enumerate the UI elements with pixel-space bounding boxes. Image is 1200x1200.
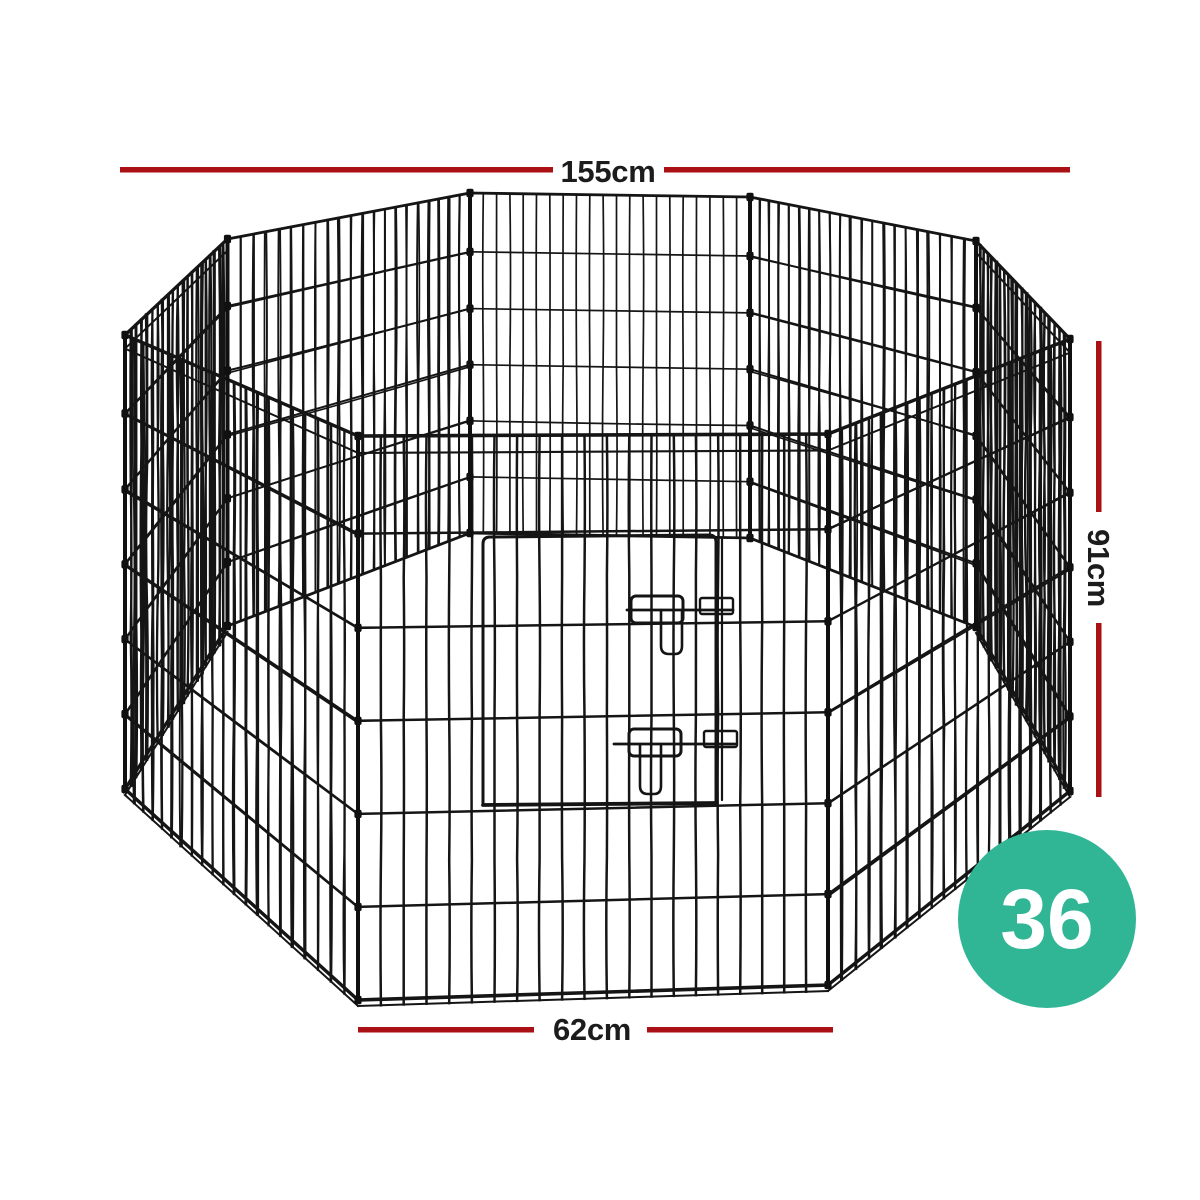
svg-text:36: 36	[1000, 872, 1093, 966]
svg-text:62cm: 62cm	[553, 1012, 631, 1047]
svg-text:155cm: 155cm	[560, 154, 655, 189]
svg-text:91cm: 91cm	[1081, 529, 1116, 607]
